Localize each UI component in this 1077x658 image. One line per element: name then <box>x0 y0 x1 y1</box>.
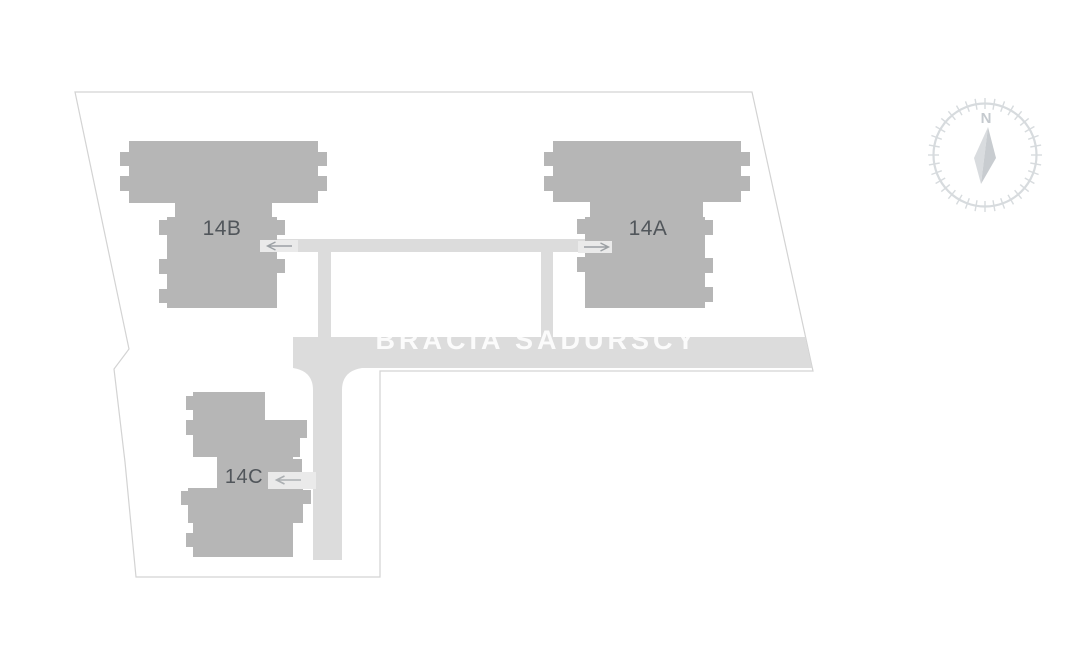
walkway-leg-west <box>318 252 331 338</box>
walkway-14b-14a <box>262 239 612 252</box>
site-plan-canvas: 14B 14A 14C BRACIA SADURSCY N <box>0 0 1077 658</box>
compass-rose: N <box>928 98 1042 212</box>
building-label-14c: 14C <box>225 466 263 488</box>
compass-north-label: N <box>981 110 992 127</box>
street-name-watermark: BRACIA SADURSCY <box>375 325 698 355</box>
building-label-14b: 14B <box>203 217 242 240</box>
building-label-14a: 14A <box>629 217 668 240</box>
